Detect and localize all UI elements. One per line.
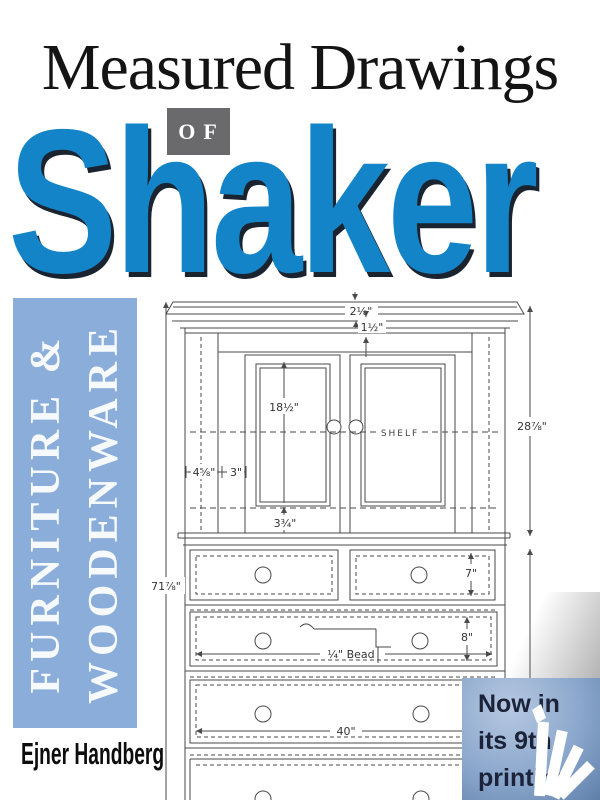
dim-stiles: 4⅝" 3" [186,464,246,479]
drawer-knob [413,791,429,800]
svg-text:18½": 18½" [269,401,299,414]
drawer-knob [413,706,429,722]
author-name: Ejner Handberg [21,736,164,772]
drawer-knob [255,706,271,722]
of-label-box: OF [167,108,230,155]
printing-badge: Now in its 9th printing [462,678,600,800]
bead-label: ¼" Bead [327,648,374,661]
svg-text:7": 7" [465,567,477,580]
cabinet-doors [245,355,455,533]
drawer-row-2 [185,612,505,677]
sidebar-vertical-text: FURNITURE & WOODENWARE [13,298,137,728]
drawer-knob [412,633,428,649]
svg-text:28⅞": 28⅞" [517,420,547,433]
drawer-knob [255,567,271,583]
svg-text:71⅞": 71⅞" [151,580,181,593]
svg-text:8": 8" [461,631,473,644]
sidebar-line-furniture: FURNITURE & [17,298,75,728]
svg-text:3¾": 3¾" [274,517,297,530]
drawer-knob [411,567,427,583]
sidebar-line-woodenware: WOODENWARE [75,298,133,728]
drawer-row-1 [185,550,505,610]
drawer-row-4 [190,759,497,800]
falling-books-icon [462,678,600,800]
page-corner-shadow [504,592,600,678]
bead-annotation: ¼" Bead [196,624,492,663]
svg-text:40": 40" [336,725,355,738]
drawer-knob [255,791,271,800]
drawer-knob [255,633,271,649]
svg-text:3": 3" [230,466,242,479]
waist-molding [178,533,510,545]
book-cover: SHELF 7" [0,0,600,800]
svg-text:4⅝": 4⅝" [193,466,216,479]
dim-door-bottom-rail: 3¾" [269,507,301,533]
dim-top-drawer: 7" [461,553,482,596]
drawer-row-3: 40" [185,680,505,755]
dim-overall-height: 71⅞" [147,302,185,800]
shelf-label: SHELF [381,429,419,439]
svg-text:1½": 1½" [361,321,384,334]
subject-title: Shaker [8,99,535,304]
